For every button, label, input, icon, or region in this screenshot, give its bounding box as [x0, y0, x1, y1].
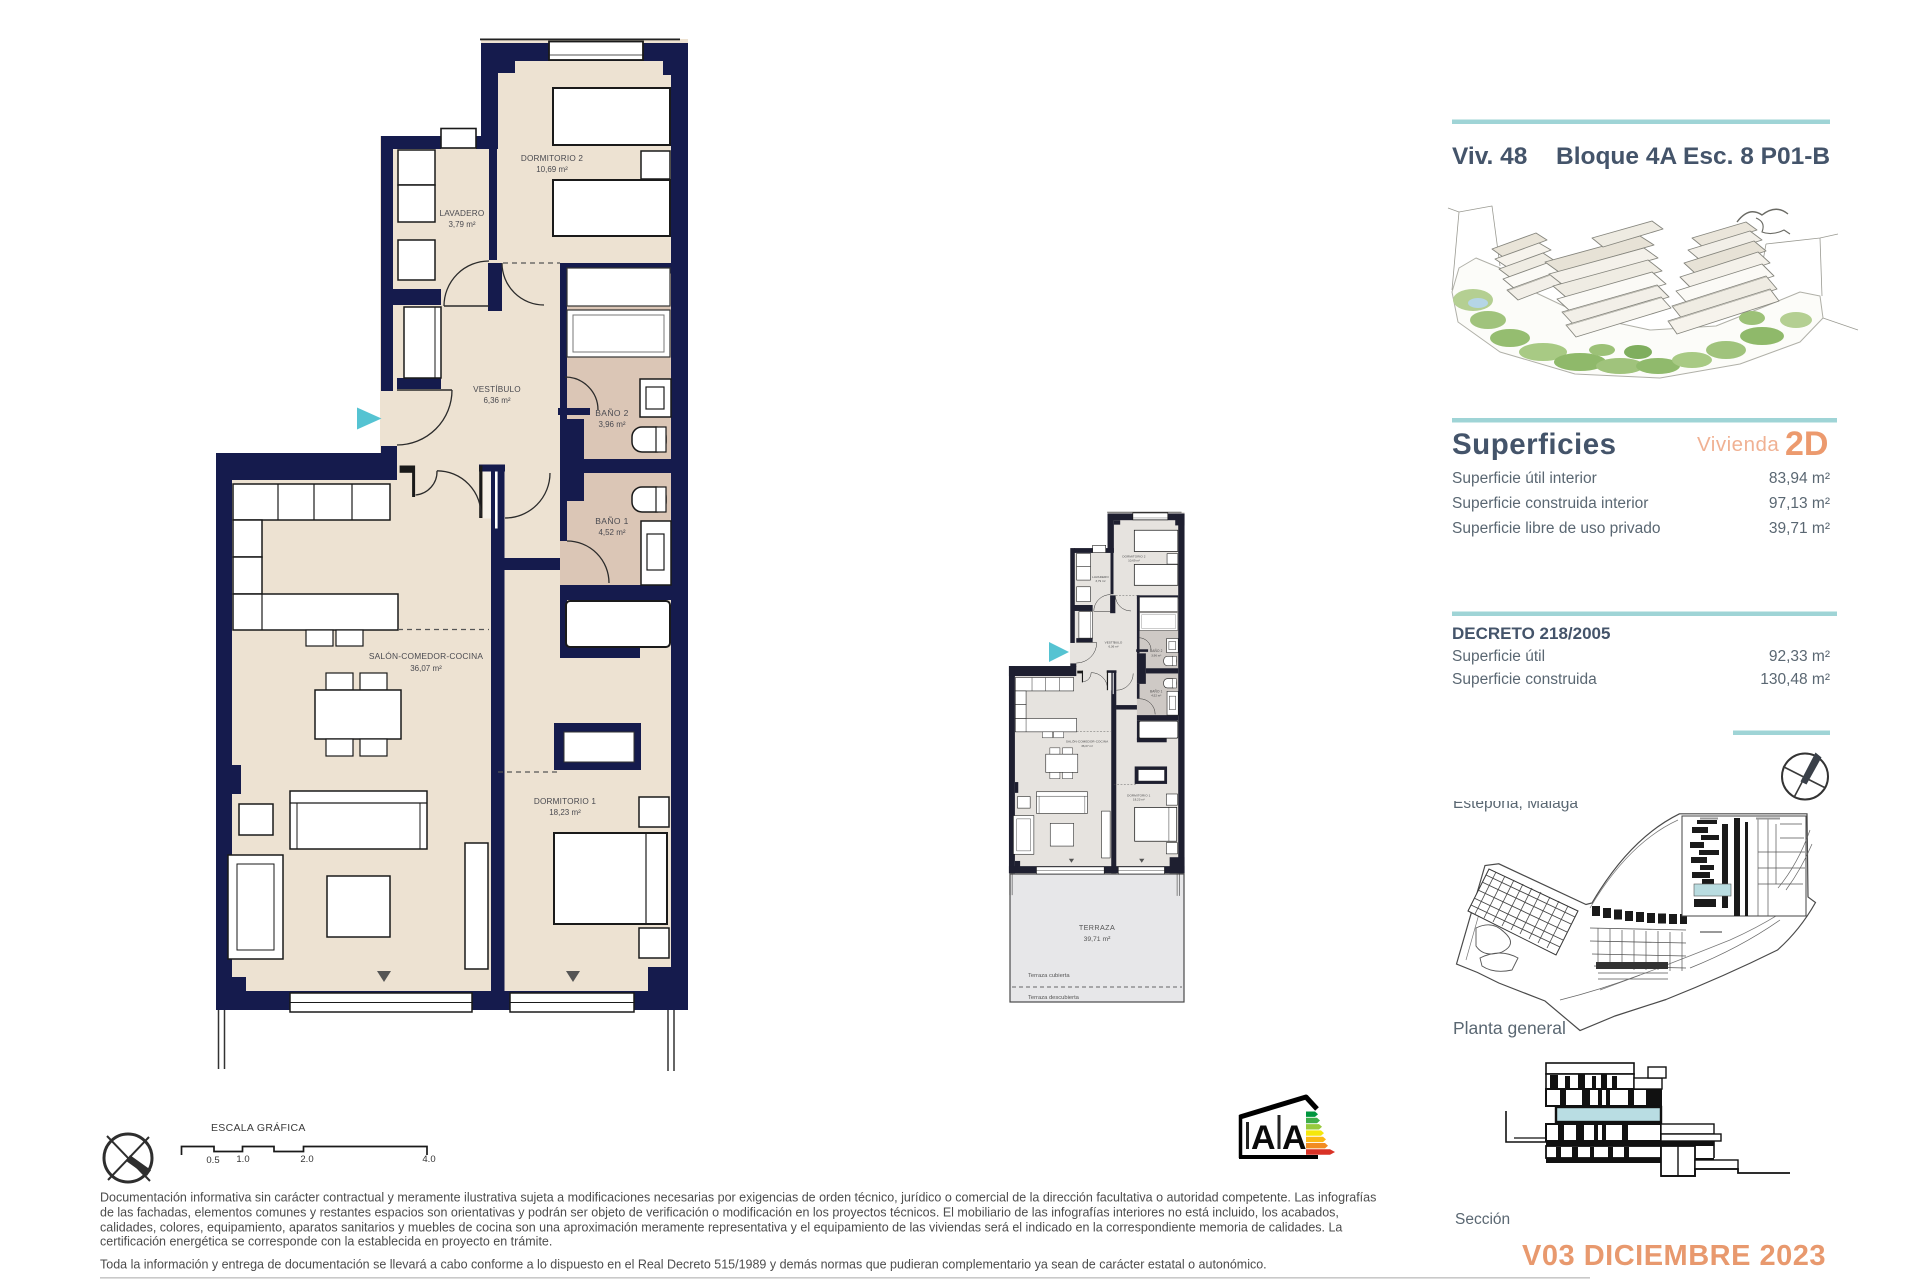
svg-text:calidades, colores, equipamien: calidades, colores, equipamiento, aparat… — [100, 1221, 1342, 1235]
svg-text:39,71 m²: 39,71 m² — [1084, 936, 1112, 943]
svg-text:6,36 m²: 6,36 m² — [483, 396, 510, 405]
svg-text:130,48 m²: 130,48 m² — [1760, 671, 1830, 688]
svg-text:1.0: 1.0 — [236, 1154, 249, 1165]
svg-text:A: A — [1282, 1119, 1307, 1157]
svg-text:18,23 m²: 18,23 m² — [549, 808, 581, 817]
svg-text:83,94 m²: 83,94 m² — [1769, 470, 1830, 487]
svg-text:de las fachadas, elementos com: de las fachadas, elementos comunes y res… — [100, 1206, 1339, 1220]
svg-text:BAÑO 2: BAÑO 2 — [595, 408, 629, 418]
svg-text:V03 DICIEMBRE 2023: V03 DICIEMBRE 2023 — [1522, 1240, 1826, 1272]
svg-text:Bloque 4A Esc. 8 P01-B: Bloque 4A Esc. 8 P01-B — [1556, 143, 1830, 170]
svg-text:A: A — [1251, 1119, 1276, 1157]
svg-text:97,13 m²: 97,13 m² — [1769, 495, 1830, 512]
svg-text:92,33 m²: 92,33 m² — [1769, 648, 1830, 665]
svg-text:Superficie construida: Superficie construida — [1452, 671, 1597, 688]
svg-text:Viv. 48: Viv. 48 — [1452, 143, 1527, 170]
svg-text:ESCALA GRÁFICA: ESCALA GRÁFICA — [211, 1121, 306, 1134]
svg-text:4.0: 4.0 — [422, 1154, 435, 1165]
svg-text:Terraza descubierta: Terraza descubierta — [1028, 995, 1080, 1001]
svg-text:TERRAZA: TERRAZA — [1079, 923, 1115, 932]
svg-text:Superficie libre de uso privad: Superficie libre de uso privado — [1452, 520, 1661, 537]
svg-text:Superficie construida interior: Superficie construida interior — [1452, 495, 1648, 512]
svg-text:Vivienda: Vivienda — [1697, 433, 1779, 456]
svg-text:certificación energética se co: certificación energética se corresponde … — [100, 1235, 552, 1249]
svg-text:DECRETO 218/2005: DECRETO 218/2005 — [1452, 624, 1610, 643]
svg-text:Planta general: Planta general — [1453, 1018, 1566, 1038]
svg-text:DORMITORIO 2: DORMITORIO 2 — [521, 154, 584, 163]
svg-text:4,52 m²: 4,52 m² — [598, 528, 625, 537]
svg-text:3,79 m²: 3,79 m² — [448, 220, 475, 229]
svg-text:Superficie útil: Superficie útil — [1452, 648, 1545, 665]
svg-text:Superficie útil interior: Superficie útil interior — [1452, 470, 1597, 487]
svg-text:BAÑO 1: BAÑO 1 — [595, 516, 629, 526]
svg-text:SALÓN-COMEDOR-COCINA: SALÓN-COMEDOR-COCINA — [369, 651, 483, 661]
svg-text:Terraza cubierta: Terraza cubierta — [1028, 973, 1070, 979]
svg-text:Toda la información y entrega: Toda la información y entrega de documen… — [100, 1258, 1267, 1272]
svg-text:39,71 m²: 39,71 m² — [1769, 520, 1830, 537]
svg-text:10,69 m²: 10,69 m² — [536, 165, 568, 174]
svg-text:2D: 2D — [1785, 425, 1828, 463]
svg-text:2.0: 2.0 — [300, 1154, 313, 1165]
svg-text:36,07 m²: 36,07 m² — [410, 664, 442, 673]
svg-text:Superficies: Superficies — [1452, 428, 1617, 461]
svg-text:DORMITORIO 1: DORMITORIO 1 — [534, 797, 597, 806]
svg-text:Documentación informativa sin: Documentación informativa sin carácter c… — [100, 1191, 1376, 1205]
svg-text:Sección: Sección — [1455, 1211, 1510, 1228]
svg-text:LAVADERO: LAVADERO — [440, 209, 485, 218]
svg-text:3,96 m²: 3,96 m² — [598, 420, 625, 429]
svg-text:0.5: 0.5 — [206, 1155, 219, 1166]
svg-text:VESTÍBULO: VESTÍBULO — [473, 384, 521, 394]
